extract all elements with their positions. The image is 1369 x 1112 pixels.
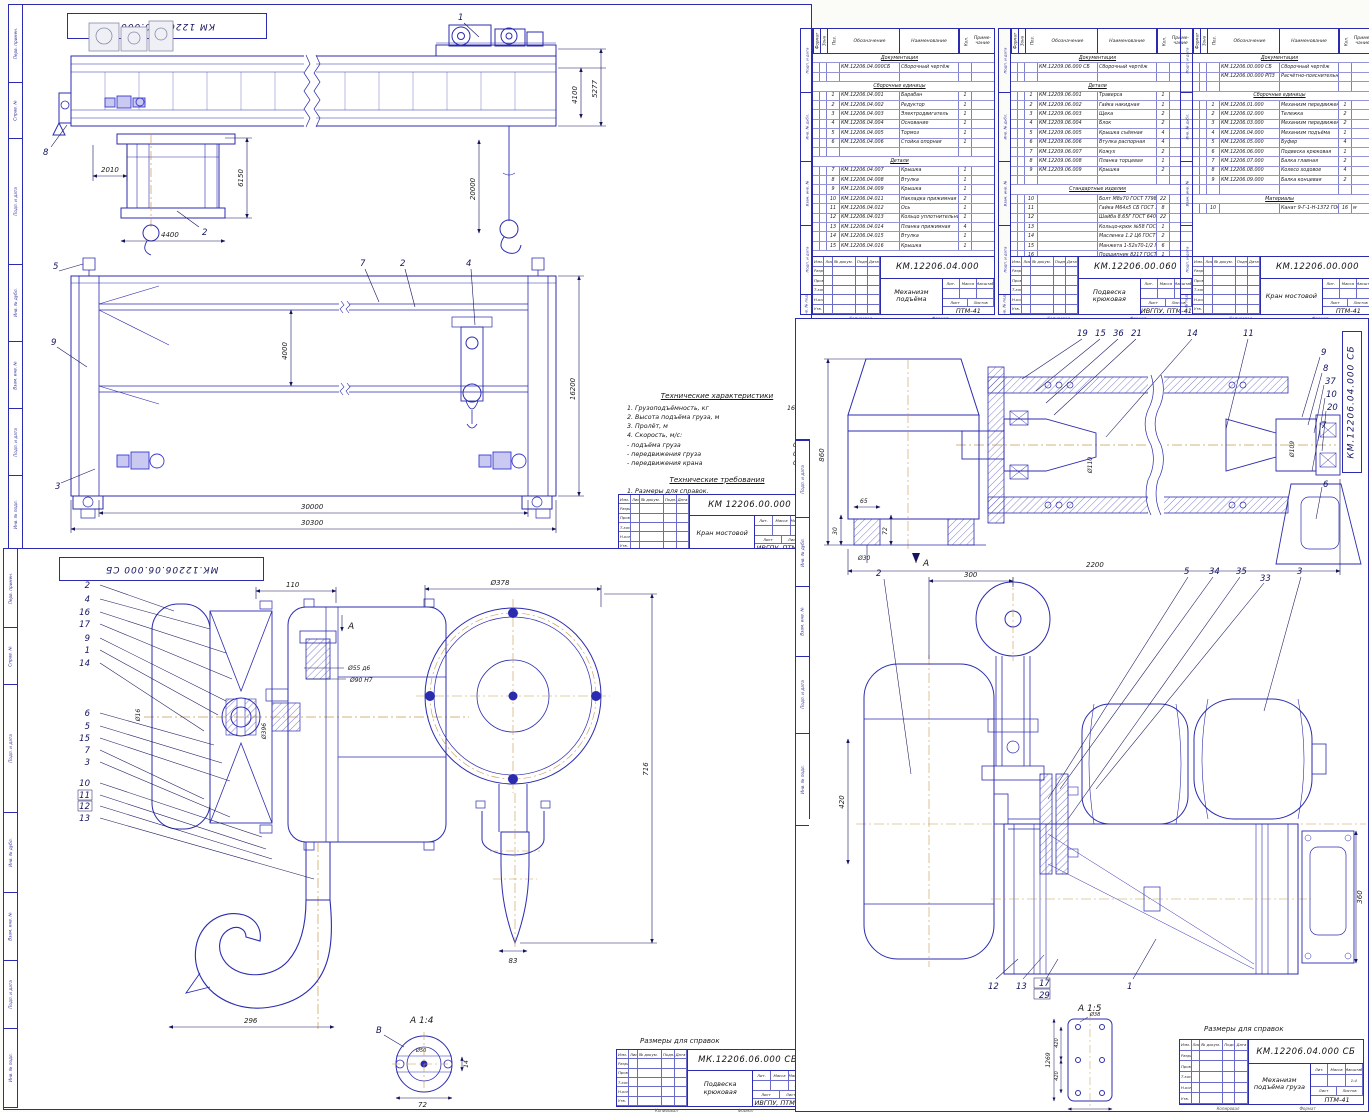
drawing-shape: [1235, 1072, 1247, 1082]
drawing-text: Ø378: [490, 579, 510, 587]
drawing-shape: [1192, 1072, 1201, 1082]
drawing-shape: Масштаб: [1346, 1064, 1363, 1074]
drawing-shape: [105, 98, 115, 107]
drawing-shape: [813, 101, 820, 109]
drawing-shape: Механизм подъёма: [1280, 129, 1339, 137]
col-zone: Зона: [820, 29, 827, 53]
drawing-shape: [662, 1059, 675, 1067]
drawing-shape: [1066, 305, 1078, 314]
drawing-shape: Лист: [824, 257, 833, 266]
drawing-text: 2200: [1086, 561, 1104, 569]
drawing-shape: [813, 195, 820, 203]
drawing-text: 20: [1327, 403, 1338, 413]
drawing-text: 15: [79, 734, 90, 744]
drawing-shape: Лист: [1323, 299, 1349, 306]
drawing-shape: Формат: [738, 1108, 754, 1112]
drawing-shape: [629, 1097, 638, 1105]
drawing-text: 296: [244, 1017, 258, 1025]
drawing-shape: Н.контр.: [1180, 1083, 1192, 1093]
drawing-shape: [121, 27, 147, 51]
drawing-shape: 1:4: [1346, 1075, 1363, 1085]
drawing-shape: [1248, 295, 1260, 304]
drawing-shape: [1031, 276, 1054, 285]
drawing-text: 2: [85, 581, 90, 591]
doc-number: КМ.12206.00.000: [1261, 257, 1369, 279]
drawing-text: 14: [1187, 329, 1198, 339]
col-note: Приме- чание: [1352, 29, 1369, 53]
drawing-shape: [1235, 1061, 1247, 1071]
drawing-shape: [461, 327, 483, 401]
drawing-shape: Т.контр.: [617, 1078, 629, 1086]
drawing-shape: 22: [1157, 214, 1170, 222]
drawing-shape: [664, 504, 677, 512]
plan-callouts: 2 5 34 35 33 3 12 13 17 29 1: [876, 567, 1302, 1001]
drawing-shape: [820, 167, 827, 175]
drawing-shape: [677, 532, 690, 540]
drawing-shape: [499, 784, 527, 832]
drawing-shape: [813, 223, 820, 231]
drawing-shape: 16: [1339, 204, 1352, 212]
title-block-footer: КопировалФормат: [655, 1108, 754, 1112]
drawing-text: Ø38: [1089, 1011, 1100, 1018]
drawing-canvas: Перв. примен.Справ. №Подп. и датаИнв. № …: [0, 0, 1369, 1112]
drawing-shape: [100, 726, 222, 763]
drawing-shape: [1068, 849, 1078, 857]
crane-travel-drive-right: [479, 452, 526, 469]
drawing-shape: 2: [1339, 110, 1352, 118]
drawing-shape: Пров.: [1193, 276, 1204, 285]
drawing-shape: [1076, 1025, 1081, 1030]
drawing-shape: [856, 267, 868, 276]
drawing-text: Ø16: [135, 709, 142, 723]
drawing-shape: Утв.: [617, 1097, 629, 1105]
frame-strip-label: Взам. инв. №: [801, 162, 812, 226]
tech-line: 1. Грузоподъёмность, кг16000: [627, 404, 807, 413]
drawing-shape: Подп.: [1223, 1040, 1235, 1050]
drawing-shape: [1031, 295, 1054, 304]
drawing-shape: Утв.: [1011, 305, 1022, 314]
plan-callout-leaders: [884, 577, 1301, 979]
spec-row: 4КМ.12206.04.004Основание1: [813, 120, 994, 129]
drawing-text: В: [376, 1026, 382, 1036]
drawing-shape: [1038, 242, 1098, 250]
drawing-shape: Лист: [755, 536, 782, 543]
drawing-shape: [833, 295, 856, 304]
drawing-shape: Изм.: [619, 495, 631, 503]
drawing-shape: [1352, 120, 1369, 128]
title-block-spec3: Изм.Лист№ докум.Подп.ДатаРазраб.Пров.Т.к…: [1193, 256, 1369, 314]
drawing-text: 30000: [301, 503, 324, 511]
drawing-shape: [131, 452, 149, 469]
drawing-shape: [1194, 699, 1312, 819]
drawing-shape: Утв.: [813, 305, 824, 314]
drawing-shape: [1018, 139, 1025, 147]
drawing-shape: Расчётно-пояснительная записка: [1280, 73, 1339, 81]
drawing-shape: Пров.: [619, 514, 631, 522]
doc-number: КМ.12206.04.000: [881, 257, 994, 279]
drawing-shape: [662, 1078, 675, 1086]
drawing-shape: 2: [1339, 157, 1352, 165]
spec-section-row: Сборочные единицы: [813, 82, 994, 91]
drawing-shape: [675, 1059, 688, 1067]
drawing-shape: [1302, 357, 1320, 417]
spec-row: [1193, 82, 1369, 91]
drawing-text: 3: [85, 758, 90, 768]
drawing-shape: 7: [1025, 148, 1038, 156]
drawing-shape: Кольцо уплотнительное: [900, 214, 959, 222]
drawing-shape: [59, 264, 83, 271]
spec-row: 7КМ.12206.04.007Крышка1: [813, 167, 994, 176]
drawing-shape: Колесо ходовое: [1280, 167, 1339, 175]
drawing-text: Ø55 д6: [347, 665, 370, 672]
drawing-shape: [1096, 583, 1264, 789]
drawing-shape: [1213, 267, 1236, 276]
drawing-shape: Изм.: [1011, 257, 1022, 266]
drawing-shape: [340, 301, 350, 395]
drawing-shape: КМ.12206.04.006: [840, 139, 900, 147]
drawing-shape: КМ.12206.04.015: [840, 232, 900, 240]
frame-strip-label: Взам. инв. №: [999, 162, 1010, 226]
trolley: [436, 25, 556, 56]
drawing-shape: [1011, 73, 1018, 81]
drawing-shape: [1011, 167, 1018, 175]
drawing-shape: [820, 176, 827, 184]
drawing-shape: [1157, 73, 1170, 81]
tech-line: 4. Скорость, м/с:: [627, 431, 807, 440]
drawing-shape: [972, 176, 993, 184]
drawing-shape: 7: [827, 167, 840, 175]
drawing-shape: [631, 504, 640, 512]
doc-number: КМ.12206.04.000 СБ: [1249, 1040, 1363, 1064]
drawing-text: 3: [1297, 567, 1302, 577]
drawing-shape: КМ.12209.06.003: [1038, 110, 1098, 118]
drawing-text: 65: [860, 498, 868, 505]
drawing-shape: Тележка: [1280, 110, 1339, 118]
spec-row: 11КМ.12206.04.012Ось1: [813, 204, 994, 213]
drawing-shape: [1193, 148, 1200, 156]
drawing-shape: [1339, 73, 1352, 81]
drawing-shape: Лит.: [755, 516, 773, 525]
drawing-shape: 6: [1207, 148, 1220, 156]
drawing-shape: [813, 204, 820, 212]
drawing-shape: [501, 28, 517, 44]
spec-row: 11Гайка М64х5 СБ ГОСТ 3915-768: [1011, 204, 1192, 213]
drawing-shape: [677, 514, 690, 522]
drawing-shape: [1223, 1051, 1235, 1061]
drawing-shape: Болт М8х70 ГОСТ 7798-70: [1098, 195, 1157, 203]
drawing-shape: [972, 223, 993, 231]
spec-row: 12КМ.12206.04.013Кольцо уплотнительное1: [813, 214, 994, 223]
spec-section-row: Детали: [1011, 82, 1192, 91]
frame-strip-label: Подп. и дата: [999, 226, 1010, 295]
drawing-shape: [813, 110, 820, 118]
drawing-text: 17: [1039, 979, 1050, 989]
drawing-shape: [1018, 110, 1025, 118]
drawing-shape: Дата: [1248, 257, 1260, 266]
drawing-shape: [1192, 1061, 1201, 1071]
drawing-shape: [1200, 110, 1207, 118]
drawing-shape: № докум.: [1031, 257, 1054, 266]
spec-header-row: Формат Зона Поз. Обозначение Наименовани…: [1011, 29, 1192, 54]
drawing-shape: [1352, 185, 1369, 193]
drawing-shape: № докум.: [638, 1050, 662, 1058]
drawing-shape: [1011, 242, 1018, 250]
drawing-shape: [1301, 497, 1339, 549]
drawing-shape: КМ.12206.04.016: [840, 242, 900, 250]
drawing-shape: [1200, 1061, 1223, 1071]
drawing-shape: Т.контр.: [1180, 1072, 1192, 1082]
hook-section-labels: 110 А Ø55 д6 Ø90 Н7 Ø16 Ø396 296: [135, 581, 373, 1025]
drawing-shape: [436, 45, 556, 56]
drawing-shape: [820, 110, 827, 118]
frame-strip-label: Инв. № дубл.: [1181, 93, 1192, 162]
spec-section-row: Документация: [813, 54, 994, 63]
drawing-shape: [127, 144, 219, 208]
drawing-shape: 9: [1207, 176, 1220, 184]
drawing-shape: Стандартные изделия: [1038, 185, 1157, 193]
drawing-shape: [1054, 267, 1066, 276]
drawing-shape: КМ.12206.01.000: [1220, 101, 1280, 109]
drawing-shape: 2: [1157, 120, 1170, 128]
drawing-shape: КМ.12206.04.007: [840, 167, 900, 175]
drawing-shape: [1022, 339, 1082, 379]
drawing-shape: [856, 305, 868, 314]
drawing-shape: [1352, 63, 1369, 71]
drawing-shape: 1: [959, 204, 972, 212]
drawing-shape: [1220, 82, 1280, 90]
drawing-shape: Лист: [631, 495, 640, 503]
drawing-shape: [1207, 63, 1220, 71]
doc-number: КМ.12206.00.060: [1079, 257, 1192, 279]
drawing-title: Механизм подъёма: [881, 279, 943, 314]
drawing-shape: [1193, 120, 1200, 128]
drawing-shape: 1: [1339, 148, 1352, 156]
col-format: Формат: [1011, 29, 1018, 53]
drawing-shape: [493, 452, 511, 469]
drawing-shape: Лист: [1311, 1087, 1337, 1095]
drawing-shape: КМ.12206.04.011: [840, 195, 900, 203]
drawing-text: 36: [1113, 329, 1124, 339]
drawing-shape: [1193, 129, 1200, 137]
drawing-shape: [824, 276, 833, 285]
drawing-shape: [1248, 267, 1260, 276]
drawing-shape: [977, 289, 994, 298]
drawing-text: Ø396: [261, 723, 268, 740]
drawing-shape: Балка главная: [1280, 157, 1339, 165]
drawing-shape: [824, 267, 833, 276]
drawing-text: 12: [79, 802, 90, 812]
drawing-shape: [840, 73, 900, 81]
spec-row: 5КМ.12206.04.005Тормоз1: [813, 129, 994, 138]
drawing-shape: [512, 454, 526, 468]
drawing-shape: [982, 766, 1044, 780]
tech-lines: 1. Грузоподъёмность, кг160002. Высота по…: [627, 404, 807, 468]
drawing-shape: [1305, 953, 1311, 959]
spec-row: 1КМ.12206.01.000Механизм передвижения те…: [1193, 101, 1369, 110]
drawing-shape: Механизм передвижения тележки: [1280, 101, 1339, 109]
drawing-shape: Ось: [900, 204, 959, 212]
sheet4-drawing: 860 65 30 72 Ø30 2200 А Ø110 Ø109 19 15: [796, 319, 1369, 1112]
frame-strip-label: Взам. инв. №: [1181, 162, 1192, 226]
drawing-shape: [1207, 73, 1220, 81]
drawing-shape: [629, 1059, 638, 1067]
drawing-shape: [1018, 63, 1025, 71]
drawing-shape: 6: [1157, 242, 1170, 250]
frame-strip-label: Подп. и дата: [1181, 226, 1192, 295]
front-view-dim-labels: 4000 16200 30000 30300 5 9 3 7 2 4: [51, 259, 577, 527]
drawing-shape: [833, 267, 856, 276]
drawing-text: 5: [85, 722, 90, 732]
drawing-shape: [1200, 120, 1207, 128]
drawing-shape: Разраб.: [1193, 267, 1204, 276]
drawing-shape: 1: [827, 92, 840, 100]
drawing-shape: [1280, 82, 1339, 90]
drawing-text: 35: [1236, 567, 1247, 577]
spec-row: 2КМ.12209.06.002Гайка накидная1: [1011, 101, 1192, 110]
drawing-shape: [1200, 73, 1207, 81]
drawing-shape: [755, 526, 773, 535]
sheet3-drawing: 110 А Ø55 д6 Ø90 Н7 Ø16 Ø396 296 2 4: [4, 549, 811, 1111]
drawing-shape: [304, 599, 434, 850]
ref-note: Размеры для справок: [640, 1037, 720, 1045]
drawing-shape: 9: [1025, 167, 1038, 175]
drawing-shape: [177, 211, 199, 227]
drawing-shape: Траверса: [1098, 92, 1157, 100]
drawing-shape: [83, 497, 93, 507]
drawing-shape: КМ.12206.09.000: [1220, 176, 1280, 184]
drawing-shape: [824, 295, 833, 304]
drawing-shape: 2: [1339, 120, 1352, 128]
spec-row: 1КМ.12209.06.001Траверса1: [1011, 92, 1192, 101]
drawing-shape: Редуктор: [900, 101, 959, 109]
spec-row: [813, 148, 994, 157]
spec-row: 5КМ.12209.06.005Крышка съёмная4: [1011, 129, 1192, 138]
drawing-shape: 1: [1157, 101, 1170, 109]
drawing-shape: Лист: [1141, 299, 1167, 306]
drawing-shape: [266, 689, 288, 701]
spec-row: 3КМ.12209.06.003Щека2: [1011, 110, 1192, 119]
drawing-shape: [1018, 232, 1025, 240]
drawing-shape: [186, 973, 210, 993]
drawing-shape: Лист: [753, 1091, 780, 1098]
drawing-shape: [1213, 305, 1236, 314]
drawing-shape: [1223, 1061, 1235, 1071]
frame-strip-label: Инв. № дубл.: [999, 93, 1010, 162]
drawing-shape: КМ.12209.06.007: [1038, 148, 1098, 156]
drawing-text: 9: [1321, 348, 1326, 358]
drawing-shape: [638, 1087, 662, 1095]
drawing-shape: [813, 232, 820, 240]
drawing-text: 5277: [591, 80, 599, 98]
drawing-shape: [100, 650, 218, 715]
drawing-shape: [988, 497, 1288, 513]
drawing-text: 11: [79, 791, 90, 801]
hook-callouts: 2 4 16 17 9 1 14 6 5 15 7 3 10 11 12 13: [78, 581, 92, 824]
drawing-shape: - подъёма груза: [627, 441, 681, 450]
spec1-side-strip: Подп. и датаИнв. № дубл.Взам. инв. №Подп…: [800, 28, 812, 315]
drawing-shape: [813, 139, 820, 147]
drawing-shape: [1352, 176, 1369, 184]
drawing-text: 420: [838, 795, 846, 809]
drawing-shape: Копировал: [1217, 1106, 1240, 1111]
drawing-shape: [1054, 276, 1066, 285]
drawing-shape: КМ.12206.04.004: [840, 120, 900, 128]
drawing-text: 8: [43, 148, 49, 158]
drawing-shape: Гайка М64х5 СБ ГОСТ 3915-76: [1098, 204, 1157, 212]
drawing-shape: № докум.: [1213, 257, 1236, 266]
drawing-shape: 1: [959, 232, 972, 240]
spec-header-row: Формат Зона Поз. Обозначение Наименовани…: [1193, 29, 1369, 54]
spec-row: 6КМ.12206.04.006Стойка опорная1: [813, 139, 994, 148]
drawing-shape: [1082, 704, 1188, 824]
spec-row: 7КМ.12209.06.007Кожух2: [1011, 148, 1192, 157]
spec-section-row: Материалы: [1193, 195, 1369, 204]
drawing-shape: Разраб.: [617, 1059, 629, 1067]
drawing-shape: [972, 63, 993, 71]
drawing-shape: [1022, 267, 1031, 276]
drawing-shape: 2: [827, 101, 840, 109]
drawing-shape: [1066, 286, 1078, 295]
drawing-shape: Электродвигатель: [900, 110, 959, 118]
drawing-shape: [1200, 1072, 1223, 1082]
drawing-shape: [1235, 1083, 1247, 1093]
drawing-shape: [677, 504, 690, 512]
drawing-shape: [1193, 82, 1200, 90]
drawing-shape: [868, 295, 880, 304]
drawing-shape: Масса: [773, 516, 791, 525]
drawing-shape: [813, 148, 820, 156]
drawing-shape: [61, 469, 95, 483]
drawing-shape: [1310, 847, 1346, 935]
drawing-shape: Лит.: [943, 279, 960, 288]
drawing-shape: Формат: [1299, 1106, 1315, 1111]
drawing-shape: Лист: [1022, 257, 1031, 266]
drawing-shape: 2: [959, 195, 972, 203]
frame-strip-label: Подп. и дата: [1181, 29, 1192, 93]
drawing-shape: [1011, 232, 1018, 240]
drawing-shape: [1018, 214, 1025, 222]
drawing-shape: Подп.: [1054, 257, 1066, 266]
drawing-shape: [1068, 577, 1240, 819]
spec-row: 4КМ.12206.04.000Механизм подъёма1: [1193, 129, 1369, 138]
drawing-shape: Крышка съёмная: [1098, 129, 1157, 137]
drawing-shape: Копировал: [655, 1108, 678, 1112]
drawing-shape: Канат 9-Г-1-Н-1372 ГОСТ 7668-80: [1280, 204, 1339, 212]
drawing-shape: 3. Пролёт, м: [627, 422, 668, 431]
spec3-side-strip: Подп. и датаИнв. № дубл.Взам. инв. №Подп…: [1180, 28, 1192, 315]
drawing-shape: [959, 148, 972, 156]
drawing-shape: [1248, 276, 1260, 285]
drawing-text: 20000: [469, 177, 477, 200]
drawing-shape: Блок: [1098, 120, 1157, 128]
drawing-shape: 7: [1207, 157, 1220, 165]
drawing-shape: [948, 519, 974, 545]
sheet-hook-suspension: Перв. примен.Справ. №Подп. и датаИнв. № …: [3, 548, 810, 1110]
drawing-shape: КМ.12206.04.000СБ: [840, 63, 900, 71]
drawing-shape: Крышка: [900, 167, 959, 175]
drawing-shape: [1236, 267, 1248, 276]
plan-dims: [848, 577, 1356, 963]
drawing-shape: [1193, 167, 1200, 175]
spec-row: 12Шайба 8.65Г ГОСТ 6402-7022: [1011, 214, 1192, 223]
drawing-shape: Т.контр.: [1011, 286, 1022, 295]
plan-view: [856, 577, 1366, 974]
drawing-shape: 14: [827, 232, 840, 240]
drawing-shape: [1204, 267, 1213, 276]
spec-row: 1КМ.12206.04.001Барабан1: [813, 92, 994, 101]
drawing-shape: [476, 801, 485, 808]
drawing-shape: КМ.12209.06.008: [1038, 157, 1098, 165]
